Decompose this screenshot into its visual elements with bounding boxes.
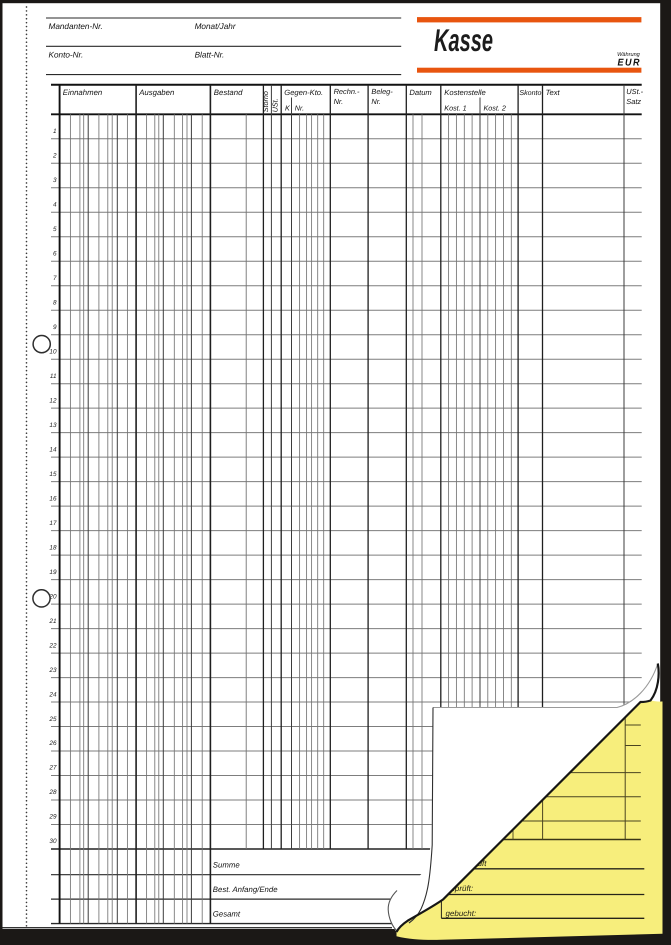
svg-text:Gegen-Kto.: Gegen-Kto. <box>284 88 323 97</box>
svg-text:Nr.: Nr. <box>295 104 304 113</box>
svg-text:16: 16 <box>49 495 57 502</box>
svg-text:Summe: Summe <box>213 861 241 870</box>
svg-text:Satz: Satz <box>626 97 641 106</box>
svg-text:15: 15 <box>49 471 57 478</box>
svg-text:Skonto: Skonto <box>519 89 541 97</box>
svg-text:Bestand: Bestand <box>214 88 243 97</box>
svg-text:29: 29 <box>48 814 57 821</box>
svg-text:Konto-Nr.: Konto-Nr. <box>49 50 84 59</box>
svg-text:12: 12 <box>49 397 57 404</box>
svg-text:25: 25 <box>48 716 57 723</box>
svg-text:1: 1 <box>53 128 57 135</box>
svg-text:Datum: Datum <box>409 88 431 97</box>
svg-text:Storno: Storno <box>261 91 270 112</box>
svg-text:3: 3 <box>53 177 57 184</box>
svg-text:Kost. 2: Kost. 2 <box>484 104 506 113</box>
svg-text:21: 21 <box>48 618 57 625</box>
svg-text:Blatt-Nr.: Blatt-Nr. <box>195 50 225 59</box>
svg-text:Nr.: Nr. <box>334 97 344 106</box>
svg-text:Monat/Jahr: Monat/Jahr <box>195 22 236 31</box>
svg-text:Einnahmen: Einnahmen <box>63 88 102 97</box>
svg-text:30: 30 <box>49 838 57 845</box>
svg-text:8: 8 <box>53 299 57 306</box>
svg-text:USt.-: USt.- <box>626 87 643 96</box>
svg-text:10: 10 <box>49 348 57 355</box>
svg-text:Beleg-: Beleg- <box>371 87 393 96</box>
svg-text:23: 23 <box>48 667 57 674</box>
svg-text:27: 27 <box>48 765 57 772</box>
svg-text:22: 22 <box>48 642 57 649</box>
svg-text:Nr.: Nr. <box>371 97 381 106</box>
svg-text:Rechn.-: Rechn.- <box>334 87 360 96</box>
svg-text:2: 2 <box>52 153 57 160</box>
svg-text:USt.: USt. <box>270 98 279 112</box>
svg-text:26: 26 <box>48 740 57 747</box>
svg-text:24: 24 <box>48 691 57 698</box>
svg-text:Kostenstelle: Kostenstelle <box>444 88 485 97</box>
svg-text:5: 5 <box>53 226 57 233</box>
svg-text:7: 7 <box>53 275 57 282</box>
svg-text:EUR: EUR <box>618 58 641 69</box>
svg-text:19: 19 <box>49 569 57 576</box>
svg-text:gebucht:: gebucht: <box>446 909 477 918</box>
svg-text:11: 11 <box>50 373 57 380</box>
svg-text:Text: Text <box>546 88 561 97</box>
svg-text:9: 9 <box>53 324 57 331</box>
svg-text:Kasse: Kasse <box>434 22 493 58</box>
svg-text:18: 18 <box>49 544 57 551</box>
svg-text:17: 17 <box>49 520 57 527</box>
svg-text:6: 6 <box>53 250 57 257</box>
svg-text:28: 28 <box>48 789 57 796</box>
svg-text:Mandanten-Nr.: Mandanten-Nr. <box>49 22 103 31</box>
svg-text:Gesamt: Gesamt <box>213 910 241 919</box>
svg-text:14: 14 <box>49 446 57 453</box>
svg-text:Best. Anfang/Ende: Best. Anfang/Ende <box>213 885 278 894</box>
svg-text:4: 4 <box>53 202 57 209</box>
svg-text:13: 13 <box>49 422 57 429</box>
svg-text:Kost. 1: Kost. 1 <box>444 104 466 113</box>
svg-text:Ausgaben: Ausgaben <box>138 88 174 97</box>
